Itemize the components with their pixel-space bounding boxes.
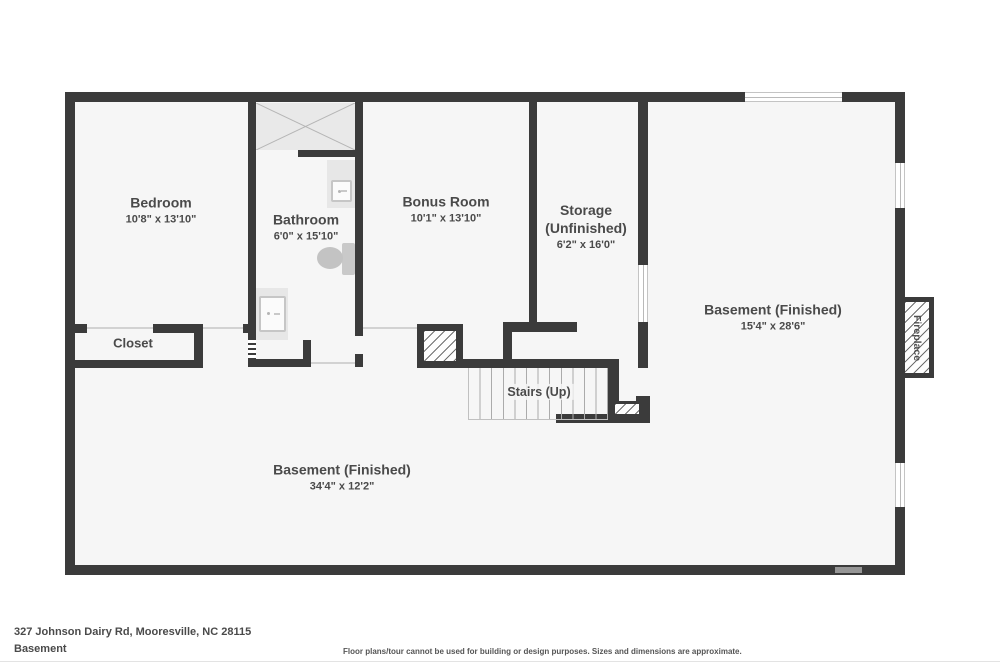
room-label-storage: Storage (Unfinished) 6'2" x 16'0"	[545, 201, 627, 253]
sink-icon	[331, 180, 352, 202]
door-opening	[311, 362, 355, 364]
footer-divider	[0, 661, 1000, 662]
window-icon	[895, 463, 905, 507]
toilet-icon	[342, 243, 355, 275]
wall	[153, 324, 203, 333]
room-label-basement-right: Basement (Finished) 15'4" x 28'6"	[704, 300, 842, 333]
room-label-basement-lower: Basement (Finished) 34'4" x 12'2"	[273, 460, 411, 493]
wall	[638, 322, 648, 368]
wall	[638, 102, 648, 265]
stair-landing-hatch	[612, 401, 642, 417]
fireplace-label: Fireplace	[911, 314, 923, 360]
window-icon	[895, 163, 905, 208]
wall	[298, 150, 363, 157]
door-opening	[203, 327, 243, 329]
window-icon	[835, 567, 862, 573]
wall	[355, 354, 363, 367]
room-label-stairs: Stairs (Up)	[504, 384, 573, 400]
sink-icon	[259, 296, 286, 332]
floorplan-page: Fireplace Bedroom 10'8" x 13'10"	[0, 0, 1000, 666]
window-icon	[745, 92, 842, 102]
room-label-closet: Closet	[113, 336, 153, 353]
disclaimer-text: Floor plans/tour cannot be used for buil…	[343, 647, 742, 656]
shower-x-icon	[256, 103, 355, 150]
floor-name: Basement	[14, 643, 67, 655]
door-opening	[87, 327, 153, 329]
fireplace: Fireplace	[900, 297, 934, 378]
wall	[65, 324, 87, 333]
room-label-bedroom: Bedroom 10'8" x 13'10"	[126, 193, 197, 226]
door-jamb-icon	[248, 338, 256, 360]
window-icon	[638, 265, 648, 322]
wall	[248, 102, 256, 338]
wall	[529, 102, 537, 330]
wall	[503, 322, 577, 332]
wall	[248, 359, 311, 367]
wall	[65, 360, 203, 368]
room-label-bathroom: Bathroom 6'0" x 15'10"	[273, 210, 339, 243]
wall	[355, 102, 363, 336]
room-label-bonus-room: Bonus Room 10'1" x 13'10"	[402, 192, 489, 225]
chimney-hatch	[417, 324, 463, 368]
wall	[463, 359, 619, 368]
toilet-icon	[317, 247, 343, 269]
property-address: 327 Johnson Dairy Rd, Mooresville, NC 28…	[14, 626, 251, 638]
wall	[243, 324, 256, 333]
door-opening	[363, 327, 417, 329]
